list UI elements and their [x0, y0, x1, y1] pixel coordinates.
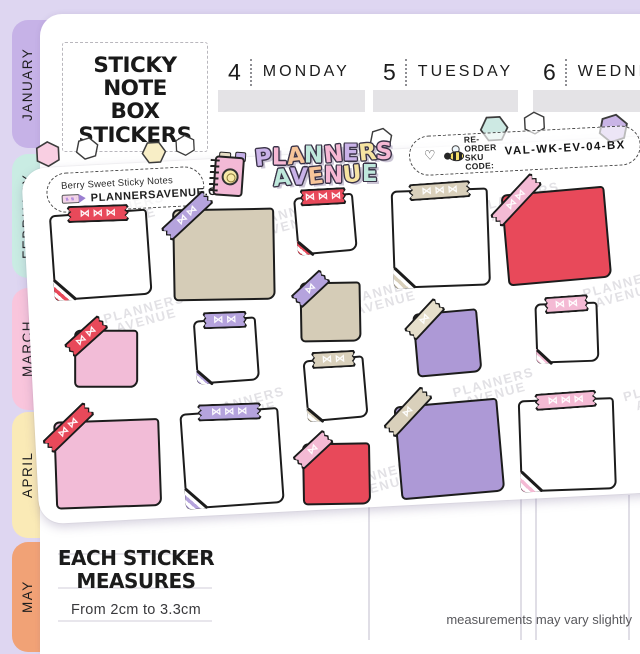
logo-letter: V [290, 165, 308, 189]
washi-tape-cream: ⋈ [403, 297, 445, 341]
day-name: WEDNESDAY [578, 63, 640, 81]
bow-icon: ⋈ [305, 192, 316, 203]
bow-icon: ⋈ [306, 443, 320, 457]
sticky-note-sticker-red: ⋈⋈ [501, 186, 613, 287]
column-line [368, 492, 370, 640]
day-gray-bar [373, 90, 518, 112]
bow-icon: ⋈ [185, 204, 199, 218]
sticky-note-sticker-red: ⋈ [302, 442, 371, 505]
logo-letter: A [271, 166, 291, 192]
day-gray-bar [218, 90, 365, 112]
hexagon-confetti-icon [34, 140, 62, 168]
logo-letter: N [324, 164, 343, 188]
washi-tape-surface: ⋈⋈ [66, 317, 107, 356]
bow-icon: ⋈ [93, 208, 103, 218]
measure-range: From 2cm to 3.3cm [56, 602, 216, 618]
logo-letter: E [362, 162, 378, 186]
day-separator-dotted [565, 59, 567, 86]
washi-tape-surface: ⋈ [405, 300, 443, 339]
bow-icon: ⋈ [303, 282, 317, 296]
bow-icon: ⋈ [554, 299, 565, 310]
measurement-info: EACH STICKER MEASURES From 2cm to 3.3cm [56, 547, 216, 618]
product-image-sticky-note-stickers: { "title": {"line1": "STICKY NOTE", "lin… [0, 0, 640, 640]
hexagon-confetti-icon [73, 134, 101, 162]
folded-corner [307, 406, 323, 422]
washi-tape-surface: ⋈⋈⋈ [198, 404, 259, 420]
washi-tape-surface: ⋈⋈ [492, 174, 541, 225]
day-separator-dotted [250, 59, 252, 86]
bow-icon: ⋈ [321, 355, 332, 366]
hexagon-confetti-icon [174, 134, 197, 157]
planner-notebook-icon [208, 151, 247, 199]
day-header-wednesday: 6WEDNESDAY [543, 56, 640, 88]
washi-tape-red: ⋈⋈ [64, 315, 110, 358]
bow-icon: ⋈ [66, 416, 80, 430]
sticky-note-sticker-white: ⋈⋈ [193, 316, 260, 384]
washi-tape-purple: ⋈⋈⋈ [197, 402, 262, 421]
logo-letter: U [342, 162, 363, 188]
sticker-sheet: PLANNERS AVENUEPLANNERS AVENUEPLANNERS A… [21, 135, 640, 524]
washi-tape-red: ⋈⋈ [41, 401, 95, 454]
folded-corner [520, 471, 542, 493]
logo-letter: E [307, 164, 325, 190]
heart-icon: ♡ [424, 147, 436, 164]
month-tab-label: MAY [12, 542, 43, 652]
washi-tape-surface: ⋈⋈ [44, 404, 93, 452]
month-tab-label: JANUARY [12, 20, 43, 148]
washi-tape-pink: ⋈⋈⋈ [534, 390, 597, 411]
bow-icon: ⋈ [80, 209, 90, 219]
bow-icon: ⋈ [447, 184, 458, 195]
watermark-text: PLANNERS AVENUE [622, 370, 640, 415]
bow-icon: ⋈ [175, 213, 189, 227]
day-number: 6 [543, 59, 556, 86]
washi-tape-pink: ⋈⋈ [543, 294, 588, 314]
bow-icon: ⋈ [84, 325, 98, 339]
bow-icon: ⋈ [56, 425, 70, 439]
bow-icon: ⋈ [417, 312, 431, 326]
bow-icon: ⋈ [334, 354, 345, 365]
logo-letter: P [254, 145, 273, 171]
washi-tape-red: ⋈⋈⋈ [300, 187, 347, 206]
washi-tape-surface: ⋈ [385, 388, 431, 436]
washi-tape-tan: ⋈⋈⋈ [408, 180, 471, 201]
sticky-note-sticker-white: ⋈⋈⋈ [49, 209, 153, 302]
washi-tape-surface: ⋈⋈ [312, 351, 353, 367]
measure-heading-line2: MEASURES [56, 570, 216, 593]
sticky-note-sticker-white: ⋈⋈ [302, 355, 368, 422]
washi-tape-red: ⋈⋈⋈ [67, 204, 130, 223]
washi-tape-tan: ⋈ [383, 386, 434, 439]
sticky-note-sticker-purple: ⋈ [412, 308, 482, 377]
washi-tape-purple: ⋈⋈ [202, 311, 247, 330]
day-number: 5 [383, 59, 396, 86]
bee-icon [443, 146, 457, 163]
sticky-note-sticker-white: ⋈⋈⋈ [518, 397, 617, 492]
day-number: 4 [228, 59, 241, 86]
sticky-note-sticker-white: ⋈⋈⋈ [293, 193, 358, 256]
bow-icon: ⋈ [567, 298, 578, 309]
bow-icon: ⋈ [106, 208, 116, 218]
day-gray-bar [533, 90, 640, 112]
day-name: MONDAY [263, 63, 350, 81]
bow-icon: ⋈ [213, 315, 223, 325]
folded-corner [53, 278, 76, 301]
reorder-label: RE-ORDER SKU CODE: [464, 134, 498, 172]
folded-corner [196, 369, 212, 385]
product-title-line1: STICKY NOTE [63, 54, 207, 100]
day-header-monday: 4MONDAY [228, 56, 375, 88]
sticky-note-sticker-white: ⋈⋈ [534, 302, 599, 364]
measurement-disclaimer: measurements may vary slightly [446, 612, 632, 627]
bow-icon: ⋈ [237, 406, 247, 416]
sku-code: VAL-WK-EV-04-BX [504, 139, 626, 157]
washi-tape-surface: ⋈⋈⋈ [301, 189, 344, 205]
sticky-note-sticker-white: ⋈⋈⋈ [391, 187, 491, 288]
sticky-note-sticker-white: ⋈⋈⋈ [179, 407, 284, 510]
bow-icon: ⋈ [560, 395, 571, 406]
bow-icon: ⋈ [226, 315, 236, 325]
bow-icon: ⋈ [74, 334, 88, 348]
bow-icon: ⋈ [401, 405, 415, 419]
folded-corner [297, 239, 313, 255]
bow-icon: ⋈ [514, 188, 528, 202]
sticky-note-sticker-tan: ⋈ [300, 281, 362, 342]
washi-tape-surface: ⋈⋈⋈ [409, 182, 469, 200]
ruled-line [58, 620, 212, 622]
folded-corner [536, 348, 552, 364]
sticky-note-sticker-pink: ⋈⋈ [53, 418, 162, 510]
day-header-tuesday: 5TUESDAY [383, 56, 528, 88]
washi-tape-pink: ⋈⋈ [490, 172, 543, 227]
bow-icon: ⋈ [434, 185, 445, 196]
product-title-line2: BOX [111, 100, 160, 123]
washi-tape-pink: ⋈ [292, 429, 334, 470]
folded-corner [184, 486, 207, 509]
bow-icon: ⋈ [211, 407, 221, 417]
bow-icon: ⋈ [505, 198, 519, 212]
bow-icon: ⋈ [331, 191, 342, 202]
bow-icon: ⋈ [224, 407, 234, 417]
washi-tape-surface: ⋈⋈⋈ [68, 206, 127, 222]
day-separator-dotted [405, 59, 407, 86]
day-name: TUESDAY [418, 63, 513, 81]
washi-tape-surface: ⋈ [292, 271, 328, 306]
logo-letter: S [376, 140, 393, 164]
washi-tape-surface: ⋈⋈ [204, 312, 245, 327]
bow-icon: ⋈ [573, 394, 584, 405]
folded-corner [393, 267, 415, 289]
planners-avenue-logo: PLANNERS AVENUE [248, 139, 400, 192]
washi-tape-surface: ⋈⋈⋈ [536, 391, 596, 409]
washi-tape-surface: ⋈ [294, 432, 332, 469]
pencil-icon [62, 194, 86, 204]
sticky-note-sticker-purple: ⋈ [393, 398, 505, 501]
washi-tape-tan: ⋈⋈ [311, 350, 356, 369]
bow-icon: ⋈ [547, 396, 558, 407]
measure-heading-line1: EACH STICKER [56, 547, 216, 570]
bow-icon: ⋈ [421, 186, 432, 197]
washi-tape-purple: ⋈ [290, 269, 331, 309]
bow-icon: ⋈ [318, 191, 329, 202]
sticky-note-sticker-pink: ⋈⋈ [74, 330, 138, 388]
washi-tape-surface: ⋈⋈ [545, 296, 587, 313]
sticky-note-sticker-tan: ⋈⋈ [172, 208, 276, 302]
